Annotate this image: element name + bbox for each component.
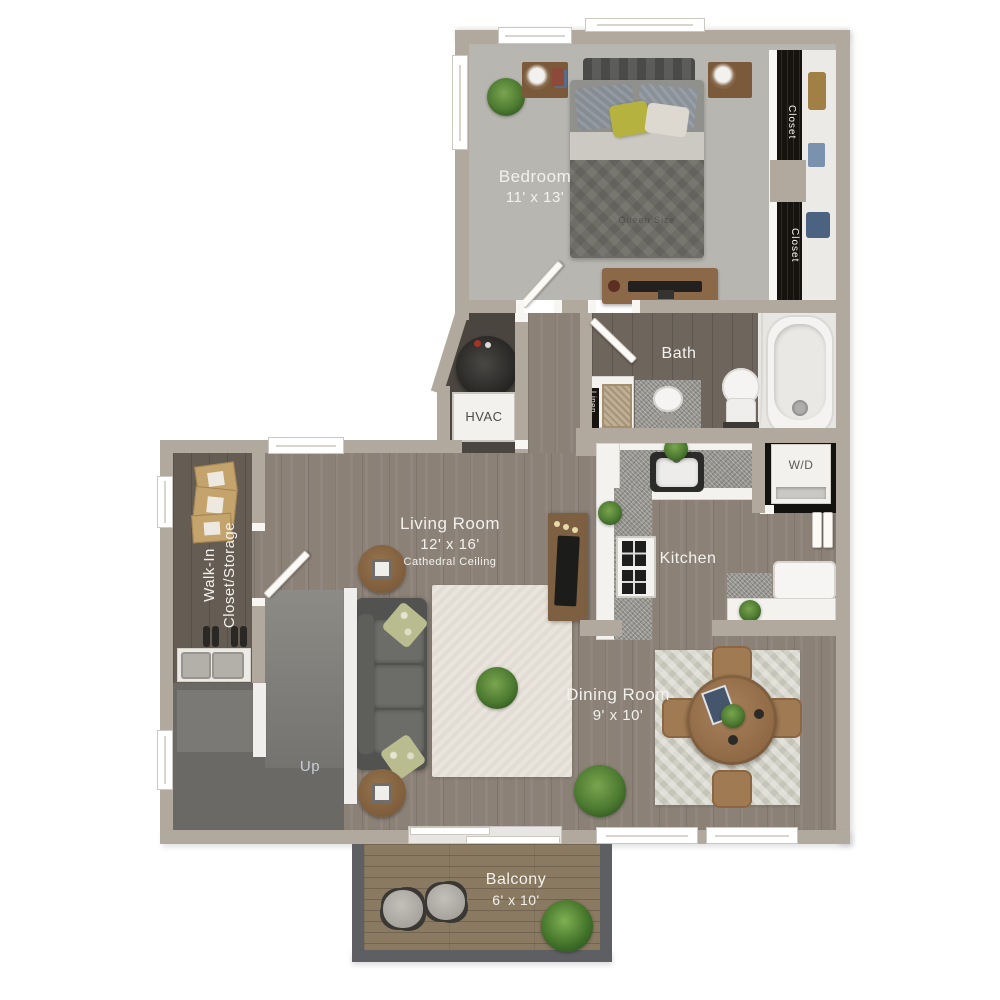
laundry-label: W/D: [771, 458, 831, 472]
bedroom-bottom-wall-c: [636, 300, 836, 313]
jamb-walkin-a: [252, 523, 265, 531]
kitchen-plant-right: [739, 600, 761, 622]
living-room-label-dims: 12' x 16': [370, 535, 530, 555]
balcony-wall-bottom: [352, 950, 612, 962]
right-wall: [836, 30, 850, 844]
walkin-right-wall-b: [252, 598, 265, 683]
kitchen-granite-right: [727, 573, 772, 600]
window-bedroom-left: [452, 55, 468, 150]
bedroom-label-name: Bedroom: [455, 166, 615, 188]
bedroom-bottom-wall-a: [462, 300, 520, 313]
jamb-bath-door-b: [632, 300, 640, 313]
coffee-table-plant: [476, 667, 518, 709]
walkin-right-wall-a: [252, 453, 265, 531]
walkin-label-line1: Walk-In: [200, 455, 220, 695]
window-bedroom-top: [498, 27, 572, 44]
main-top-wall-a: [160, 440, 270, 453]
living-room-label: Living Room 12' x 16' Cathedral Ceiling: [370, 513, 530, 569]
bedroom-label: Bedroom 11' x 13': [455, 166, 615, 208]
dining-room-label-name: Dining Room: [538, 684, 698, 706]
stairs-upper-flight: [265, 590, 344, 768]
dresser-knob: [608, 280, 620, 292]
linen-basket: [602, 384, 632, 428]
dining-chair-bottom: [712, 770, 752, 808]
stairs-lower-flight: [177, 690, 253, 752]
bath-bottom-wall: [576, 428, 836, 443]
bed-pillow-white: [644, 102, 690, 138]
lamp-left: [524, 64, 550, 90]
tv: [554, 535, 580, 606]
hallway-floor: [528, 313, 580, 453]
side-table-bottom-lamp: [372, 783, 392, 803]
laundry-left-wall: [752, 441, 765, 513]
dresser-tv-stand: [658, 290, 674, 299]
floor-plan: Queen Size Linen HVAC W/D: [0, 0, 1000, 1000]
table-plate-right: [754, 709, 764, 719]
jamb-hvac-b: [515, 440, 528, 449]
dining-room-label-dims: 9' x 10': [538, 706, 698, 726]
sliding-door-panel-b: [466, 836, 560, 844]
kitchen-dining-stub-right: [712, 620, 845, 636]
hvac-label: HVAC: [452, 409, 516, 424]
stairs-up-label: Up: [288, 757, 332, 777]
kitchen-plant-left: [598, 501, 622, 525]
stove-burners-bottom: [622, 570, 646, 594]
walkin-label: Walk-In Closet/Storage: [200, 455, 240, 695]
table-plate-bottom: [728, 735, 738, 745]
closet-item-navy: [806, 212, 830, 238]
hvac-right-wall: [515, 313, 528, 453]
washer-slot: [776, 487, 826, 499]
balcony-label-dims: 6' x 10': [436, 891, 596, 909]
walkin-label-line2: Closet/Storage: [220, 455, 240, 695]
lamp-right: [710, 63, 736, 89]
kitchen-label: Kitchen: [628, 549, 748, 570]
jamb-bedroom-door-a: [516, 300, 524, 313]
bed-size-label: Queen Size: [597, 215, 697, 227]
balcony-label: Balcony 6' x 10': [436, 870, 596, 909]
bath-label: Bath: [639, 344, 719, 365]
kitchen-dining-stub-left: [580, 620, 622, 636]
window-walkin-top: [268, 437, 344, 454]
water-heater-valve-red: [474, 340, 481, 347]
bath-bottom-wall-stub: [576, 443, 596, 456]
window-bottom-2: [706, 827, 798, 844]
balcony-label-name: Balcony: [436, 870, 596, 891]
living-room-label-name: Living Room: [370, 513, 530, 535]
window-bedroom-top-2: [585, 18, 705, 32]
balcony-wall-right: [600, 844, 612, 962]
dining-plant: [574, 765, 626, 817]
closet-top-label: Closet: [785, 105, 798, 139]
sofa-cushion-2: [374, 665, 424, 708]
sofa-back: [358, 614, 374, 754]
balcony-chair-1: [383, 890, 423, 928]
bedroom-label-dims: 11' x 13': [455, 188, 615, 208]
closet-item-blue: [808, 143, 825, 167]
media-console-knobs: [554, 521, 560, 527]
laundry-door-leaf-b: [823, 512, 833, 548]
jamb-bath-door-a: [588, 300, 596, 313]
water-heater-valve-white: [485, 342, 491, 348]
stairs-side-wall: [253, 683, 266, 757]
vanity-sink: [653, 386, 683, 412]
stairs-divider-wall: [344, 588, 357, 804]
hall-linen-wall: [580, 313, 592, 428]
nightstand-books: [552, 68, 564, 86]
window-left-1: [157, 476, 173, 528]
window-left-2: [157, 730, 173, 790]
sliding-door-panel-a: [410, 827, 490, 835]
dining-room-label: Dining Room 9' x 10': [538, 684, 698, 726]
jamb-walkin-b: [252, 598, 265, 606]
window-bottom-1: [596, 827, 698, 844]
laundry-door-leaf-a: [812, 512, 822, 548]
table-centerpiece: [721, 704, 745, 728]
closet-bottom-label: Closet: [788, 228, 801, 262]
bedroom-plant: [487, 78, 525, 116]
jamb-hvac-a: [515, 313, 528, 322]
closet-divider-wall: [770, 160, 806, 202]
closet-item-gold: [808, 72, 826, 110]
jamb-bedroom-door-b: [554, 300, 562, 313]
balcony-wall-left: [352, 844, 364, 962]
refrigerator: [773, 561, 836, 600]
vanity-faucet-icon: [661, 414, 675, 421]
bathtub-faucet-icon: [792, 400, 808, 416]
main-top-wall-b: [342, 440, 462, 453]
living-room-label-note: Cathedral Ceiling: [370, 555, 530, 569]
